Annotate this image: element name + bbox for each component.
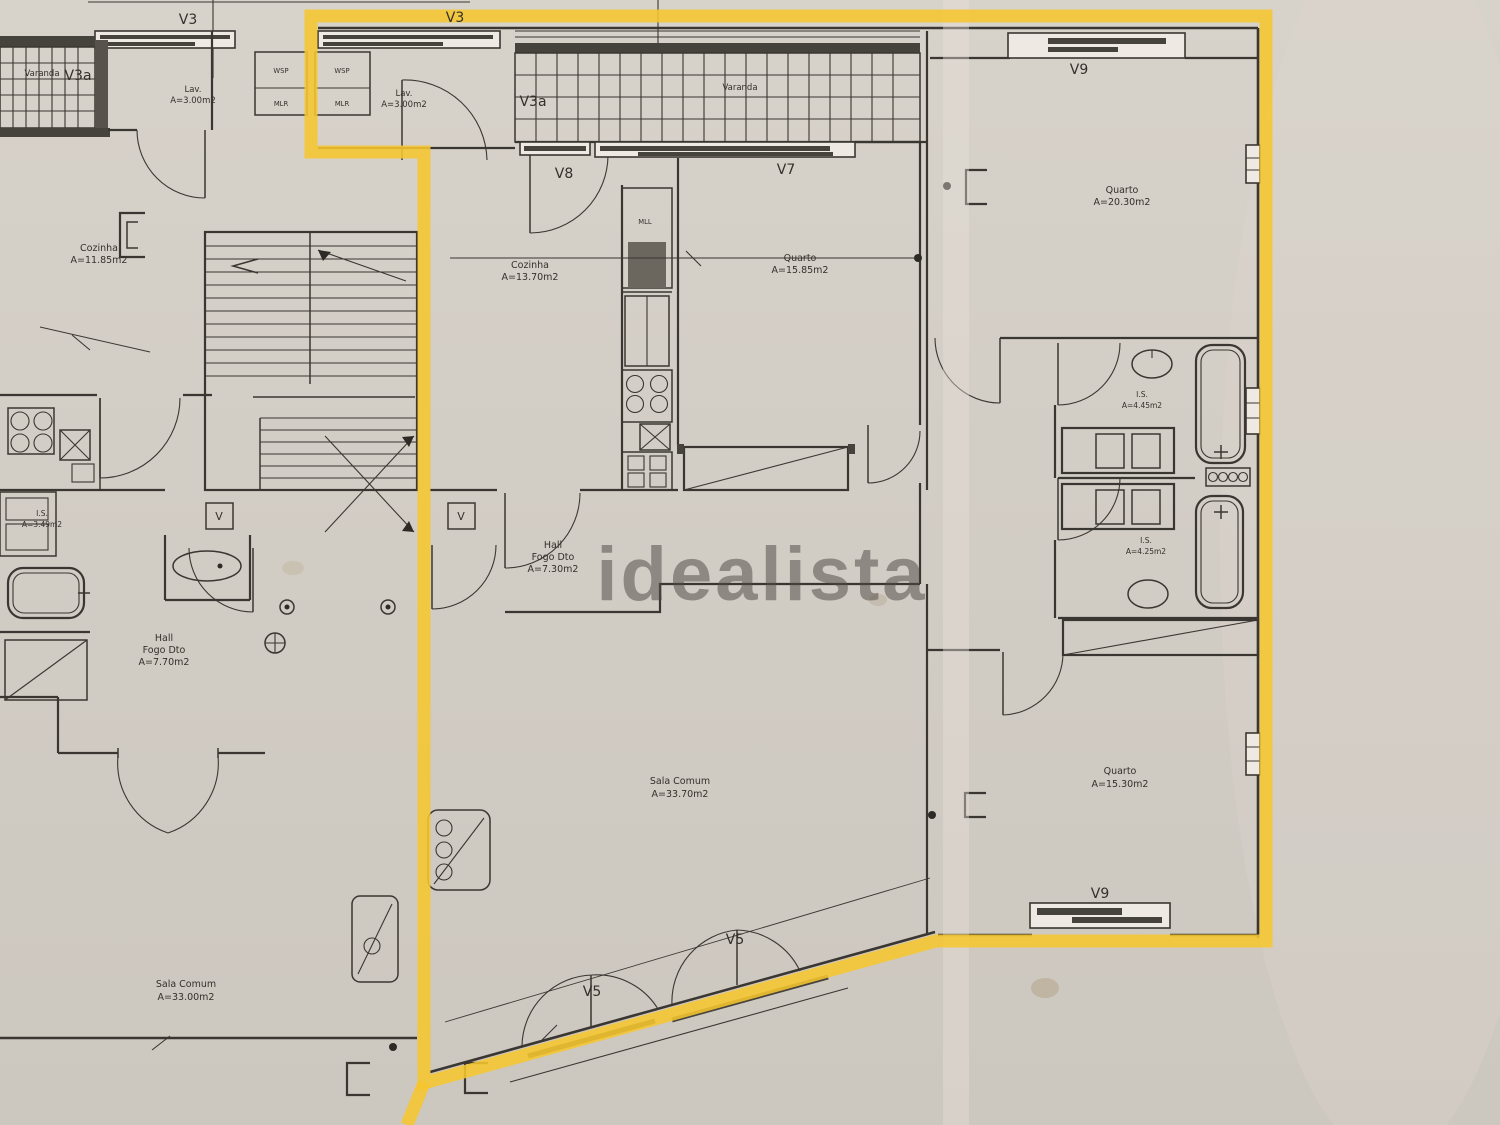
label-hall: Hall [544,540,562,551]
label-window-v9-bottom: V9 [1091,886,1109,902]
label-bath2: I.S. [1140,536,1152,545]
floor-plan-scan: Varanda V3a V3 Lav. A=3.00m2 WSP MLR Coz… [0,0,1500,1125]
label-laundry: Lav. [395,89,412,99]
label-left-wc-area: A=3.49m2 [22,520,62,529]
label-left-hall-unit: Fogo Dto [143,645,186,656]
label-duct-bottom: MLR [335,100,350,108]
label-bedroom2: Quarto [1106,185,1139,196]
label-bath1-area: A=4.45m2 [1122,401,1162,410]
label-living-area: A=33.70m2 [652,789,709,800]
label-left-vent: V [215,510,223,523]
label-hall-area: A=7.30m2 [528,564,579,575]
label-bedroom3-area: A=15.30m2 [1092,779,1149,790]
label-bath2-area: A=4.25m2 [1126,547,1166,556]
label-hall-unit: Fogo Dto [532,552,575,563]
label-door-v5-2: V5 [726,932,744,948]
label-left-wc: I.S. [36,509,48,518]
label-living: Sala Comum [650,776,710,787]
label-kitchen: Cozinha [511,260,549,271]
label-window-v3: V3 [446,10,464,26]
paper-stain [1031,978,1059,998]
label-left-hall-area: A=7.70m2 [139,657,190,668]
label-left-balcony: Varanda [24,69,59,79]
paper-stain [282,561,304,575]
label-left-living-area: A=33.00m2 [158,992,215,1003]
label-left-hall: Hall [155,633,173,644]
label-bedroom1: Quarto [784,253,817,264]
label-window-v7: V7 [777,162,795,178]
label-kitchen-area: A=13.70m2 [502,272,559,283]
label-left-duct-top: WSP [273,67,288,75]
label-appliance-mll: MLL [638,218,652,226]
label-door-v5-1: V5 [583,984,601,1000]
label-left-kitchen: Cozinha [80,243,118,254]
label-bedroom1-area: A=15.85m2 [772,265,829,276]
idealista-watermark: idealista [596,532,927,617]
label-left-laundry: Lav. [184,85,201,95]
label-left-balcony-code: V3a [64,68,91,84]
label-left-duct-bottom: MLR [274,100,289,108]
label-balcony: Varanda [722,83,757,93]
label-balcony-code: V3a [519,94,546,110]
label-bedroom3: Quarto [1104,766,1137,777]
label-laundry-area: A=3.00m2 [381,100,427,110]
scan-seam [943,0,969,1125]
label-window-v9-top: V9 [1070,62,1088,78]
label-bath1: I.S. [1136,390,1148,399]
label-left-laundry-area: A=3.00m2 [170,96,216,106]
floor-plan-svg: Varanda V3a V3 Lav. A=3.00m2 WSP MLR Coz… [0,0,1500,1125]
label-door-v8: V8 [555,166,573,182]
label-left-living: Sala Comum [156,979,216,990]
label-left-window-v3: V3 [179,12,197,28]
label-bedroom2-area: A=20.30m2 [1094,197,1151,208]
label-vent: V [457,510,465,523]
label-left-kitchen-area: A=11.85m2 [71,255,128,266]
label-duct-top: WSP [334,67,349,75]
